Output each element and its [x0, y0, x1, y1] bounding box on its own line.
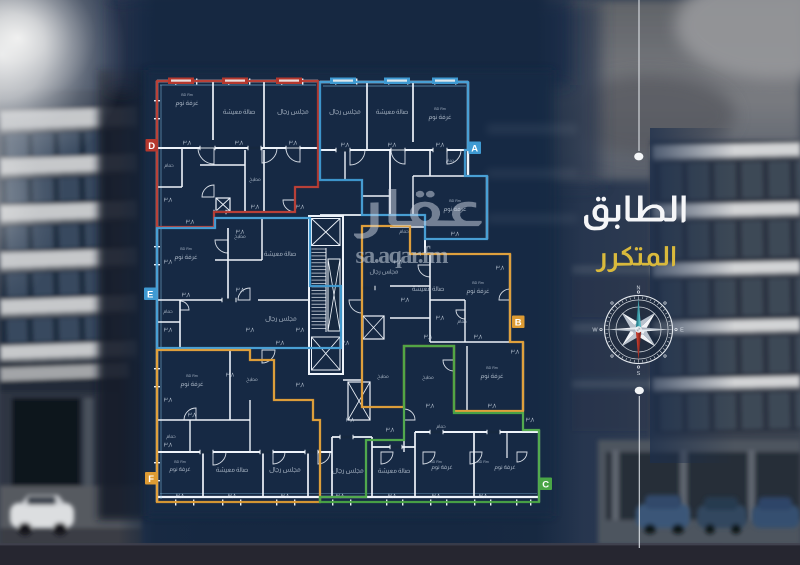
svg-text:sa.aqar.fm: sa.aqar.fm — [356, 243, 449, 269]
svg-text:BD Rm: BD Rm — [449, 199, 461, 203]
svg-text:B: B — [515, 317, 522, 328]
svg-text:N: N — [637, 286, 641, 292]
svg-text:BD Rm: BD Rm — [477, 460, 489, 464]
svg-text:F: F — [148, 474, 154, 485]
svg-text:BD Rm: BD Rm — [486, 366, 498, 370]
svg-text:BD Rm: BD Rm — [430, 460, 442, 464]
svg-text:BD Rm: BD Rm — [472, 281, 484, 285]
svg-text:D: D — [148, 141, 155, 152]
svg-text:E: E — [147, 289, 153, 300]
svg-text:A: A — [471, 143, 478, 154]
svg-text:BD Rm: BD Rm — [186, 374, 198, 378]
svg-text:S: S — [637, 371, 641, 377]
svg-text:C: C — [542, 479, 549, 490]
svg-text:E: E — [680, 328, 684, 334]
svg-text:BD Rm: BD Rm — [174, 460, 186, 464]
svg-text:BD Rm: BD Rm — [434, 107, 446, 111]
svg-text:BD Rm: BD Rm — [181, 93, 193, 97]
svg-text:BD Rm: BD Rm — [180, 247, 192, 251]
svg-text:W: W — [592, 328, 598, 334]
